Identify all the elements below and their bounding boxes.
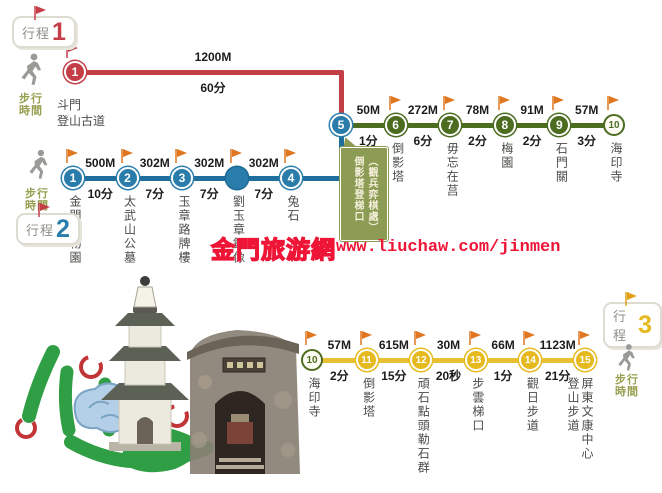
stop-1: 1 — [64, 61, 86, 83]
route-line — [312, 358, 585, 363]
stop-name: 斗門 登山古道 — [57, 97, 105, 129]
walking-person-icon — [28, 148, 52, 187]
route-badge-1: 行程 1 — [12, 16, 76, 48]
stop-name: 太武山公墓 — [123, 195, 137, 265]
route-line — [73, 176, 343, 181]
flag-icon — [34, 6, 36, 20]
route-badge-prefix: 行程 — [22, 23, 50, 42]
segment-time: 60分 — [178, 79, 248, 96]
scenic-collage — [5, 272, 305, 493]
route-badge-number: 1 — [52, 20, 66, 44]
route-badge-prefix: 行程 — [613, 306, 636, 344]
stop-name: 頑石點頭勒石群 — [416, 377, 430, 475]
segment-distance: 1123M — [523, 338, 593, 352]
stop-name: 玉章路牌樓 — [177, 195, 191, 265]
segment-distance: 1200M — [178, 50, 248, 64]
route-badge-2: 行程 2 — [16, 213, 80, 245]
walk-time-label-3: 步行時間 — [613, 374, 641, 398]
segment-distance: 57M — [552, 103, 622, 117]
callout-text: （觀兵弈棋處） 倒影塔登梯口 — [350, 156, 378, 233]
segment-time: 7分 — [229, 185, 299, 202]
route-badge-number: 3 — [638, 313, 652, 337]
route-line — [341, 123, 614, 128]
stop-name: 步雲梯口 — [471, 377, 485, 433]
route1-line — [80, 70, 344, 75]
segment-time: 21分 — [523, 367, 593, 384]
flag-icon — [625, 292, 627, 306]
watermark-site-name: 金門旅游網 — [211, 230, 336, 265]
watermark: 金門旅游網www.liuchaw.com/jinmen — [211, 230, 560, 265]
stop5-callout: （觀兵弈棋處） 倒影塔登梯口 — [340, 147, 388, 241]
route-badge-number: 2 — [56, 217, 70, 241]
stop-name: 屏東文康中心 登山步道 — [566, 377, 594, 461]
watermark-url: www.liuchaw.com/jinmen — [336, 238, 560, 257]
segment-time: 3分 — [552, 132, 622, 149]
segment-distance: 302M — [229, 156, 299, 170]
flag-icon — [38, 203, 40, 217]
walk-time-label-1: 步行時間 — [17, 93, 45, 117]
stop-name: 毋忘在莒 — [445, 142, 459, 198]
walking-person-icon — [20, 52, 46, 93]
route-badge-prefix: 行程 — [26, 220, 54, 239]
stop-name: 觀日步道 — [525, 377, 539, 433]
